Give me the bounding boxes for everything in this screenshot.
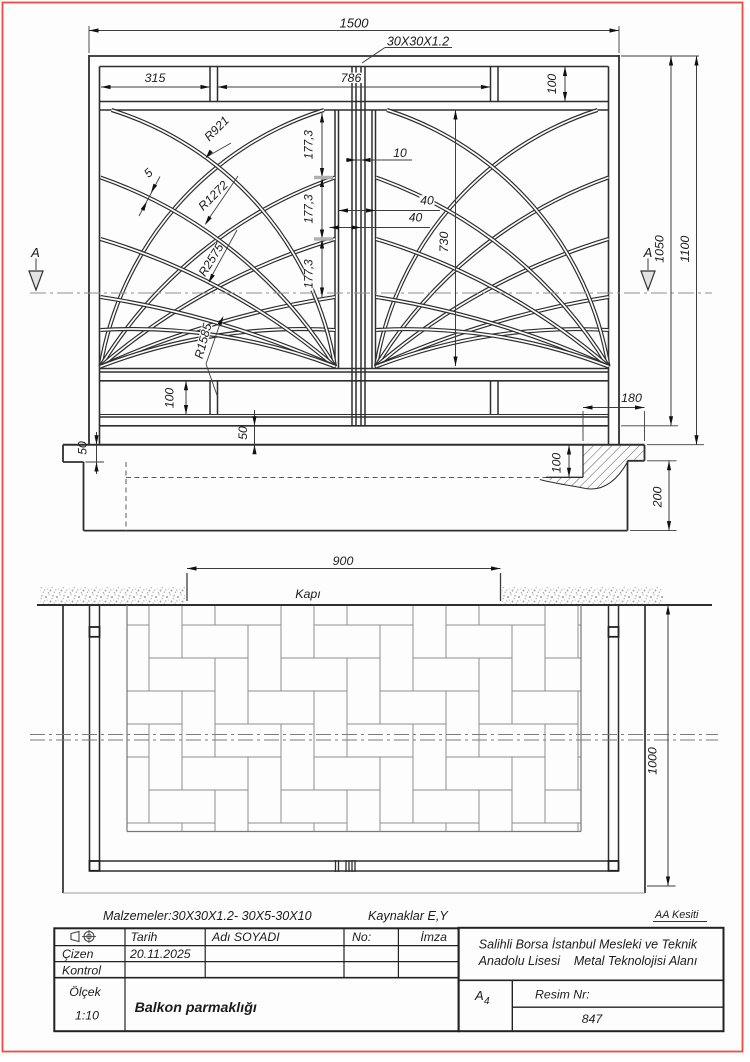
svg-text:40: 40 <box>409 211 423 225</box>
svg-text:900: 900 <box>333 554 354 568</box>
svg-text:40: 40 <box>420 194 434 208</box>
svg-text:100: 100 <box>550 453 564 474</box>
svg-text:No:: No: <box>352 930 371 944</box>
svg-text:1500: 1500 <box>340 16 370 31</box>
svg-text:177,3: 177,3 <box>303 194 316 224</box>
svg-text:100: 100 <box>163 388 177 409</box>
svg-text:1000: 1000 <box>646 747 660 775</box>
svg-text:50: 50 <box>236 426 250 440</box>
svg-text:730: 730 <box>437 232 451 253</box>
svg-text:Anadolu Lisesi Metal Teknol: Anadolu Lisesi Metal Teknolojisi Alanı <box>478 954 698 968</box>
svg-text:177,3: 177,3 <box>303 130 316 160</box>
svg-text:4: 4 <box>484 996 490 1007</box>
svg-text:Kontrol: Kontrol <box>62 964 102 978</box>
svg-text:847: 847 <box>582 1012 604 1026</box>
svg-text:AA Kesiti: AA Kesiti <box>654 909 699 921</box>
svg-text:315: 315 <box>145 71 166 85</box>
svg-text:100: 100 <box>545 74 559 95</box>
svg-text:177,3: 177,3 <box>303 259 316 289</box>
svg-text:A: A <box>30 245 40 260</box>
svg-text:Resim Nr:: Resim Nr: <box>535 988 590 1002</box>
svg-text:Salihli Borsa İstanbul Mesleki: Salihli Borsa İstanbul Mesleki ve Teknik <box>479 938 698 952</box>
svg-text:İmza: İmza <box>420 930 447 944</box>
svg-text:Kaynaklar E,Y: Kaynaklar E,Y <box>368 909 449 923</box>
svg-text:Tarih: Tarih <box>131 930 158 944</box>
svg-text:Kapı: Kapı <box>295 587 321 601</box>
svg-text:1100: 1100 <box>678 236 692 263</box>
svg-text:Ölçek: Ölçek <box>69 985 101 999</box>
svg-text:10: 10 <box>393 146 407 160</box>
svg-text:1:10: 1:10 <box>75 1009 99 1023</box>
svg-text:Balkon parmaklığı: Balkon parmaklığı <box>135 1000 257 1016</box>
svg-text:Malzemeler:30X30X1.2- 30X5-30X: Malzemeler:30X30X1.2- 30X5-30X10 <box>103 909 312 923</box>
svg-text:Adı SOYADI: Adı SOYADI <box>211 930 280 944</box>
svg-text:50: 50 <box>76 441 90 455</box>
svg-text:200: 200 <box>651 487 665 509</box>
svg-text:Çizen: Çizen <box>62 947 94 961</box>
svg-text:786: 786 <box>341 71 362 85</box>
svg-text:180: 180 <box>621 391 642 405</box>
svg-text:20.11.2025: 20.11.2025 <box>129 947 191 961</box>
svg-text:A: A <box>643 245 653 260</box>
svg-text:A: A <box>474 988 484 1003</box>
svg-text:30X30X1.2: 30X30X1.2 <box>387 34 449 48</box>
svg-text:1050: 1050 <box>653 235 667 263</box>
